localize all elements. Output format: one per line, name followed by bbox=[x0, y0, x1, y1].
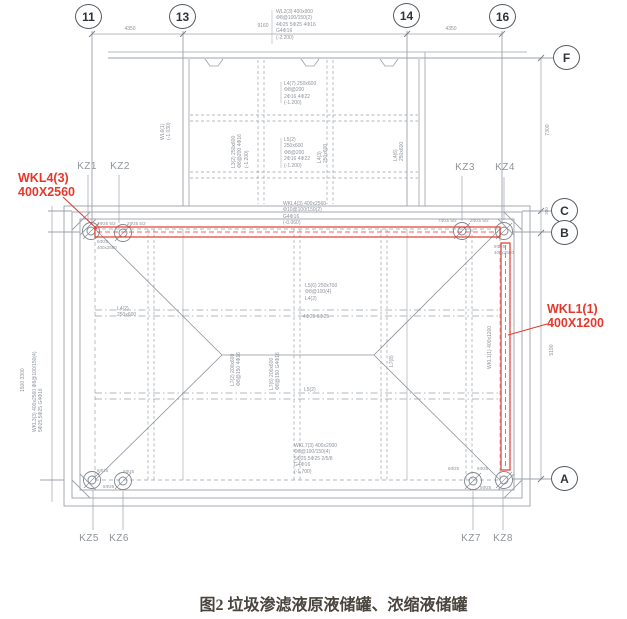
annotation-plat-rot-b: L4(6) 250x600 bbox=[393, 142, 406, 161]
axis-bubble-13: 13 bbox=[169, 4, 196, 29]
annotation-kz56-rebar: 5Φ25 bbox=[103, 484, 114, 490]
dimension-ticks bbox=[89, 31, 544, 482]
annotation-beam-top-r1: 7Φ25 5/2 bbox=[438, 218, 457, 224]
column-kz6 bbox=[115, 473, 132, 490]
column-label-kz3: KZ3 bbox=[450, 162, 480, 173]
axis-bubble-16: 16 bbox=[489, 4, 516, 29]
dim-right-mid: 350 bbox=[544, 191, 549, 231]
annotation-left-dim-rot: 1500 3300 bbox=[20, 368, 26, 392]
annotation-plat-upper: L4(7) 250x600 Φ8@200 2Φ16 4Φ22 (-1.200) bbox=[284, 81, 316, 107]
annotation-wkl1-rot: WKL1(1) 400x1200 bbox=[487, 326, 493, 369]
annotation-plat-rot-a: L4(3) 250x600 bbox=[317, 144, 330, 163]
axis-bubble-14: 14 bbox=[393, 3, 420, 28]
callout-wkl4: WKL4(3)400X2560 bbox=[18, 171, 75, 199]
axis-bubble-a: A bbox=[551, 466, 578, 491]
callout-wkl4-size: 400X2560 bbox=[18, 185, 75, 199]
annotation-kz4-spec: 5Φ25 400x2560 bbox=[494, 244, 514, 255]
annotation-plat-center: L5(2) 250x600 Φ8@200 2Φ16 4Φ22 (-1.200) bbox=[284, 137, 310, 169]
annotation-kz7-rebar: 6Φ25 bbox=[448, 466, 459, 472]
annotation-plat-edge-rot: WL6(1) (-1.030) bbox=[160, 122, 173, 140]
column-leader-lines bbox=[88, 175, 504, 530]
column-kz8 bbox=[496, 472, 513, 489]
column-label-kz1: KZ1 bbox=[72, 161, 102, 172]
column-label-kz6: KZ6 bbox=[104, 533, 134, 544]
annotation-center-rot-c: L7(8) bbox=[389, 355, 395, 367]
annotation-center-rot-b: L7(6) 200x600 Φ8@150 G4Φ16 bbox=[269, 352, 282, 390]
annotation-kz5-rebar: 6Φ25 bbox=[97, 468, 108, 474]
annotation-beam-top-r2: 2Φ25 5/2 bbox=[470, 218, 489, 224]
annotation-bottom-spec: WKL7(3) 400x2000 Φ8@100/150(4) 5Φ25,5Φ25… bbox=[294, 443, 337, 475]
annotation-kz1-spec: 5Φ25 400x2560 bbox=[97, 239, 117, 250]
annotation-kz8-rebar2: 5Φ25 bbox=[480, 485, 491, 491]
column-label-kz5: KZ5 bbox=[74, 533, 104, 544]
highlighted-beams bbox=[63, 197, 547, 470]
column-kz7 bbox=[465, 473, 482, 490]
annotation-center-rot-a: L7(2) 200x600 Φ8@150 4Φ16 bbox=[230, 352, 243, 386]
dim-right-upper: 7300 bbox=[545, 110, 551, 150]
callout-wkl1: WKL1(1)400X1200 bbox=[547, 302, 604, 330]
annotation-kz8-rebar: 6Φ25 bbox=[477, 466, 488, 472]
annotation-beam-top-l1: 3Φ25 5/2 bbox=[97, 221, 116, 227]
column-label-kz7: KZ7 bbox=[456, 533, 486, 544]
annotation-center-b: 4Φ25 6Φ25 bbox=[303, 314, 329, 320]
axis-bubble-f: F bbox=[553, 45, 580, 70]
annotation-beam-top-l2: 2Φ25 5/2 bbox=[127, 221, 146, 227]
annotation-top-block: WL2(3) 400x900 Φ8@100/150(2) 4Φ25 5Φ25 4… bbox=[276, 9, 316, 41]
annotation-kz6-rebar: 6Φ25 bbox=[123, 469, 134, 475]
callout-wkl4-name: WKL4(3) bbox=[18, 171, 69, 185]
upper-platform bbox=[108, 10, 527, 206]
column-label-kz2: KZ2 bbox=[105, 161, 135, 172]
annotation-center-a: L5(6) 250x700 Φ8@100(4) L4(2) bbox=[305, 283, 337, 302]
annotation-center-c: L5(2) bbox=[304, 387, 316, 393]
beam-haunch-marks bbox=[205, 59, 398, 66]
dim-right-lower: 5190 bbox=[549, 330, 555, 370]
structural-plan-drawing: 11 13 14 16 F C B A 4350 9160 4350 7300 … bbox=[0, 0, 627, 619]
annotation-plat-left-rot: L3(2) 250x600 Φ8@200 4Φ16 (-1.200) bbox=[231, 134, 250, 168]
column-label-kz4: KZ4 bbox=[490, 162, 520, 173]
dim-top-left: 4350 bbox=[110, 26, 150, 32]
axis-bubble-b: B bbox=[551, 220, 578, 245]
annotation-wkl4-spec: WKL4(3) 400x2560 Φ10@100/150(2) G4Φ16 (-… bbox=[283, 201, 326, 227]
annotation-left-beam: L4(2) 250x600 bbox=[117, 306, 136, 319]
callout-wkl1-size: 400X1200 bbox=[547, 316, 604, 330]
annotation-left-wall-rot: WKL3(3) 400x2560 Φ8@100/150(4) 5Φ25,5Φ25… bbox=[32, 351, 45, 432]
dim-top-right: 4350 bbox=[431, 26, 471, 32]
figure-caption: 图2 垃圾渗滤液原液储罐、浓缩液储罐 bbox=[40, 591, 627, 615]
column-label-kz8: KZ8 bbox=[488, 533, 518, 544]
callout-wkl1-name: WKL1(1) bbox=[547, 302, 598, 316]
axis-bubble-11: 11 bbox=[75, 4, 102, 29]
